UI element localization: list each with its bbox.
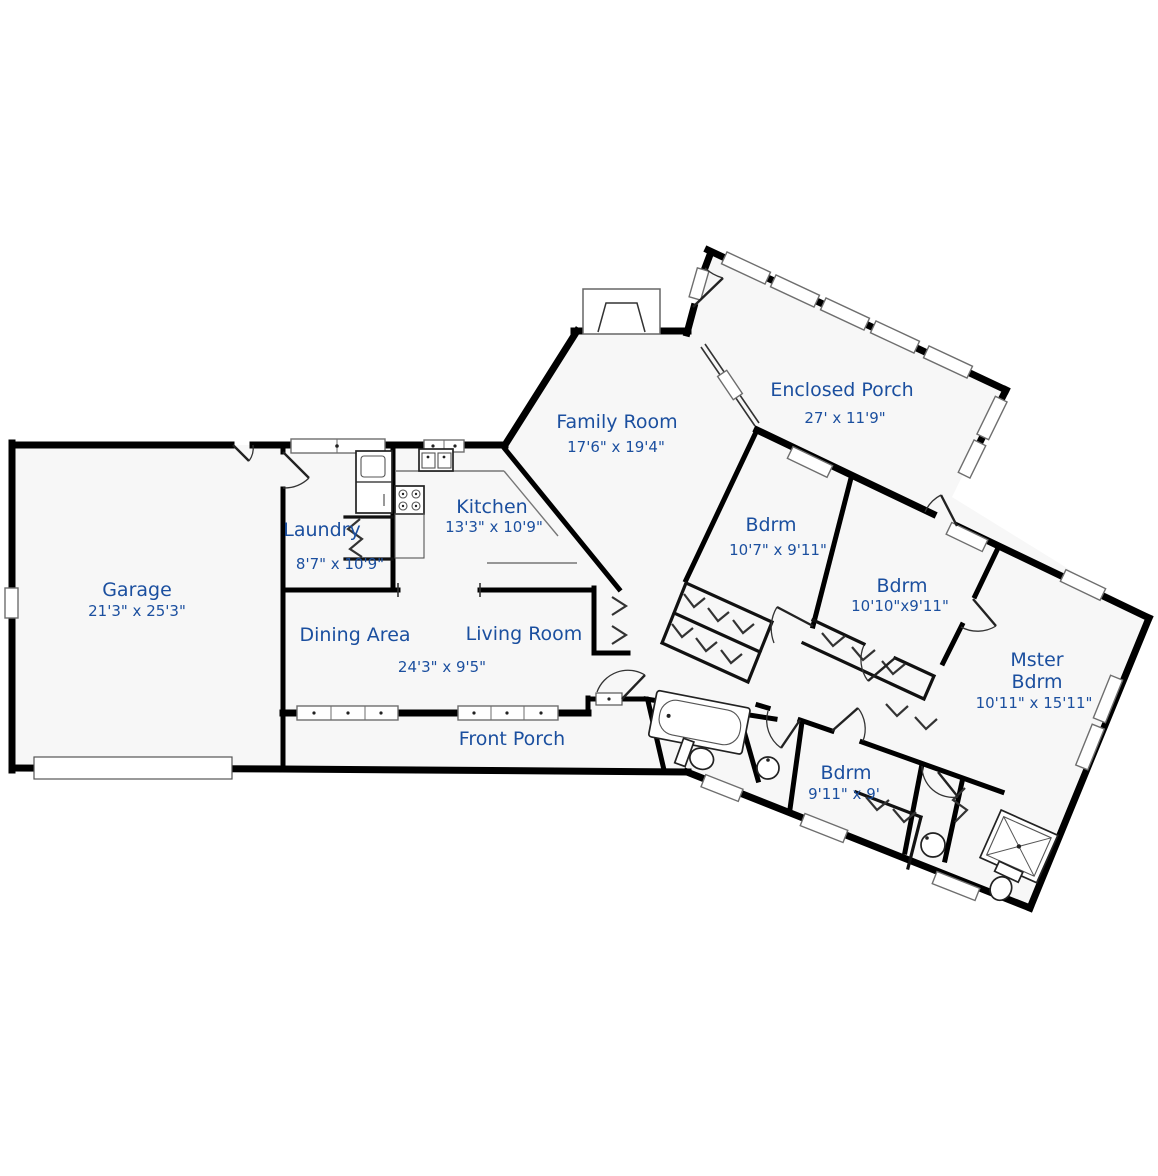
- svg-text:Bdrm: Bdrm: [1011, 671, 1062, 693]
- floor-plan-canvas: Garage 21'3" x 25'3" Laundry 8'7" x 10'9…: [0, 0, 1158, 1176]
- garage-door-icon: [34, 757, 232, 779]
- svg-text:9'11" x 9': 9'11" x 9': [808, 785, 880, 803]
- room-label-living-room: Living Room: [466, 623, 583, 645]
- svg-text:27' x 11'9": 27' x 11'9": [804, 409, 885, 427]
- fireplace-icon: [583, 289, 660, 334]
- washer-dryer-icon: [356, 451, 392, 513]
- window-icon: [5, 588, 18, 618]
- bathroom-sink-icon: [921, 833, 945, 857]
- svg-text:Enclosed Porch: Enclosed Porch: [770, 379, 913, 401]
- bathroom-sink-icon: [757, 757, 779, 779]
- svg-text:13'3" x 10'9": 13'3" x 10'9": [445, 518, 543, 536]
- window-icon: [297, 706, 398, 720]
- room-label-dining-area: Dining Area: [299, 624, 410, 646]
- room-label-garage: Garage 21'3" x 25'3": [88, 579, 186, 620]
- svg-text:Bdrm: Bdrm: [876, 575, 927, 597]
- svg-text:Bdrm: Bdrm: [820, 762, 871, 784]
- svg-text:Family Room: Family Room: [556, 411, 677, 433]
- svg-text:Kitchen: Kitchen: [456, 496, 527, 518]
- svg-text:Bdrm: Bdrm: [745, 514, 796, 536]
- svg-text:Front Porch: Front Porch: [459, 728, 565, 750]
- floor-plan-page: Garage 21'3" x 25'3" Laundry 8'7" x 10'9…: [0, 0, 1158, 1176]
- svg-text:10'7" x 9'11": 10'7" x 9'11": [729, 541, 827, 559]
- window-icon: [458, 706, 558, 720]
- svg-text:17'6" x 19'4": 17'6" x 19'4": [567, 438, 665, 456]
- svg-text:Living Room: Living Room: [466, 623, 583, 645]
- svg-text:24'3" x 9'5": 24'3" x 9'5": [398, 658, 486, 676]
- svg-text:Garage: Garage: [102, 579, 172, 601]
- svg-text:Laundry: Laundry: [283, 519, 360, 541]
- room-label-dining-living-dims: 24'3" x 9'5": [398, 658, 486, 676]
- room-label-front-porch: Front Porch: [459, 728, 565, 750]
- svg-text:10'11" x 15'11": 10'11" x 15'11": [976, 694, 1093, 712]
- svg-text:Mster: Mster: [1010, 649, 1063, 671]
- floor-area: [12, 252, 1148, 907]
- svg-text:21'3" x 25'3": 21'3" x 25'3": [88, 602, 186, 620]
- svg-text:Dining Area: Dining Area: [299, 624, 410, 646]
- svg-text:10'10"x9'11": 10'10"x9'11": [851, 597, 949, 615]
- svg-text:8'7" x 10'9": 8'7" x 10'9": [296, 555, 384, 573]
